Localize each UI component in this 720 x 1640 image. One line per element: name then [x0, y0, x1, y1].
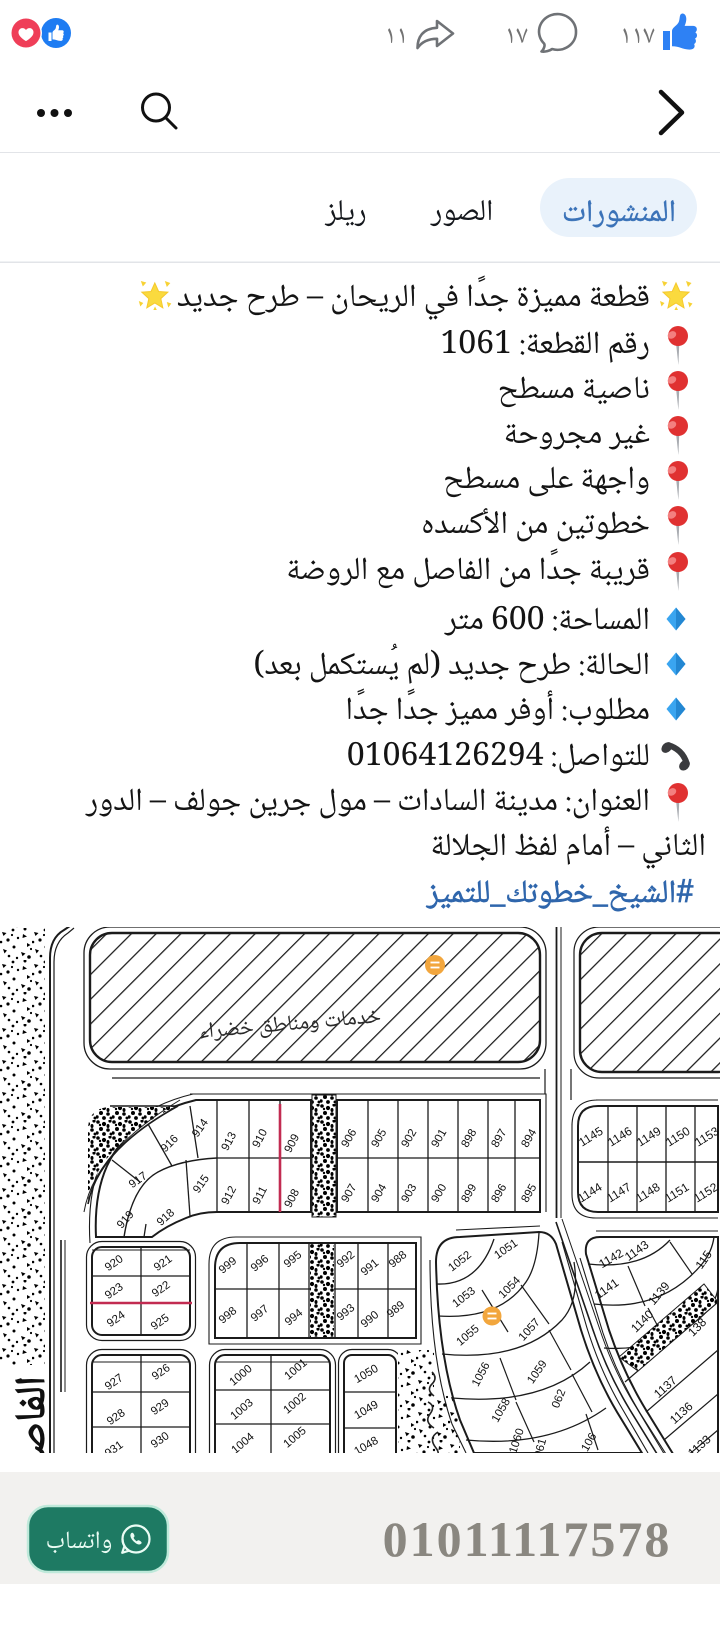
svg-text:01011117578: 01011117578 — [383, 1511, 672, 1567]
